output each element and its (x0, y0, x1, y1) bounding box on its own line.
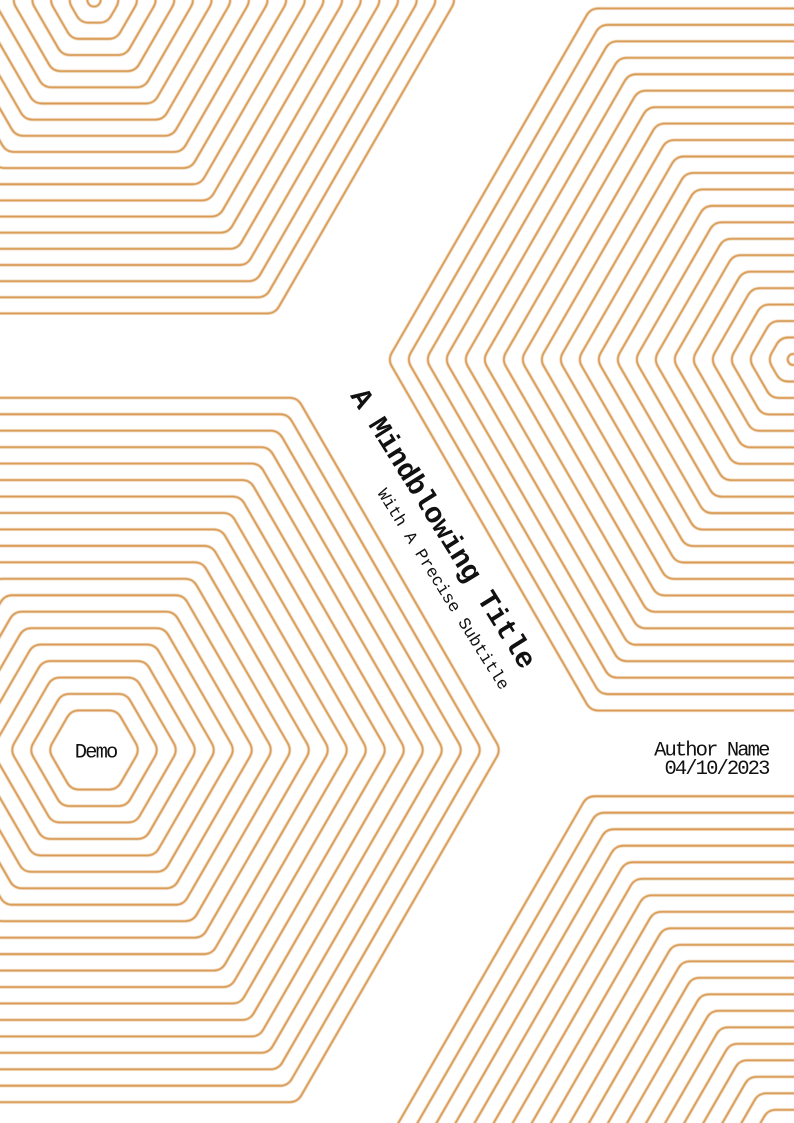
svg-text:04/10/2023: 04/10/2023 (664, 758, 769, 781)
svg-text:Demo: Demo (75, 742, 117, 765)
